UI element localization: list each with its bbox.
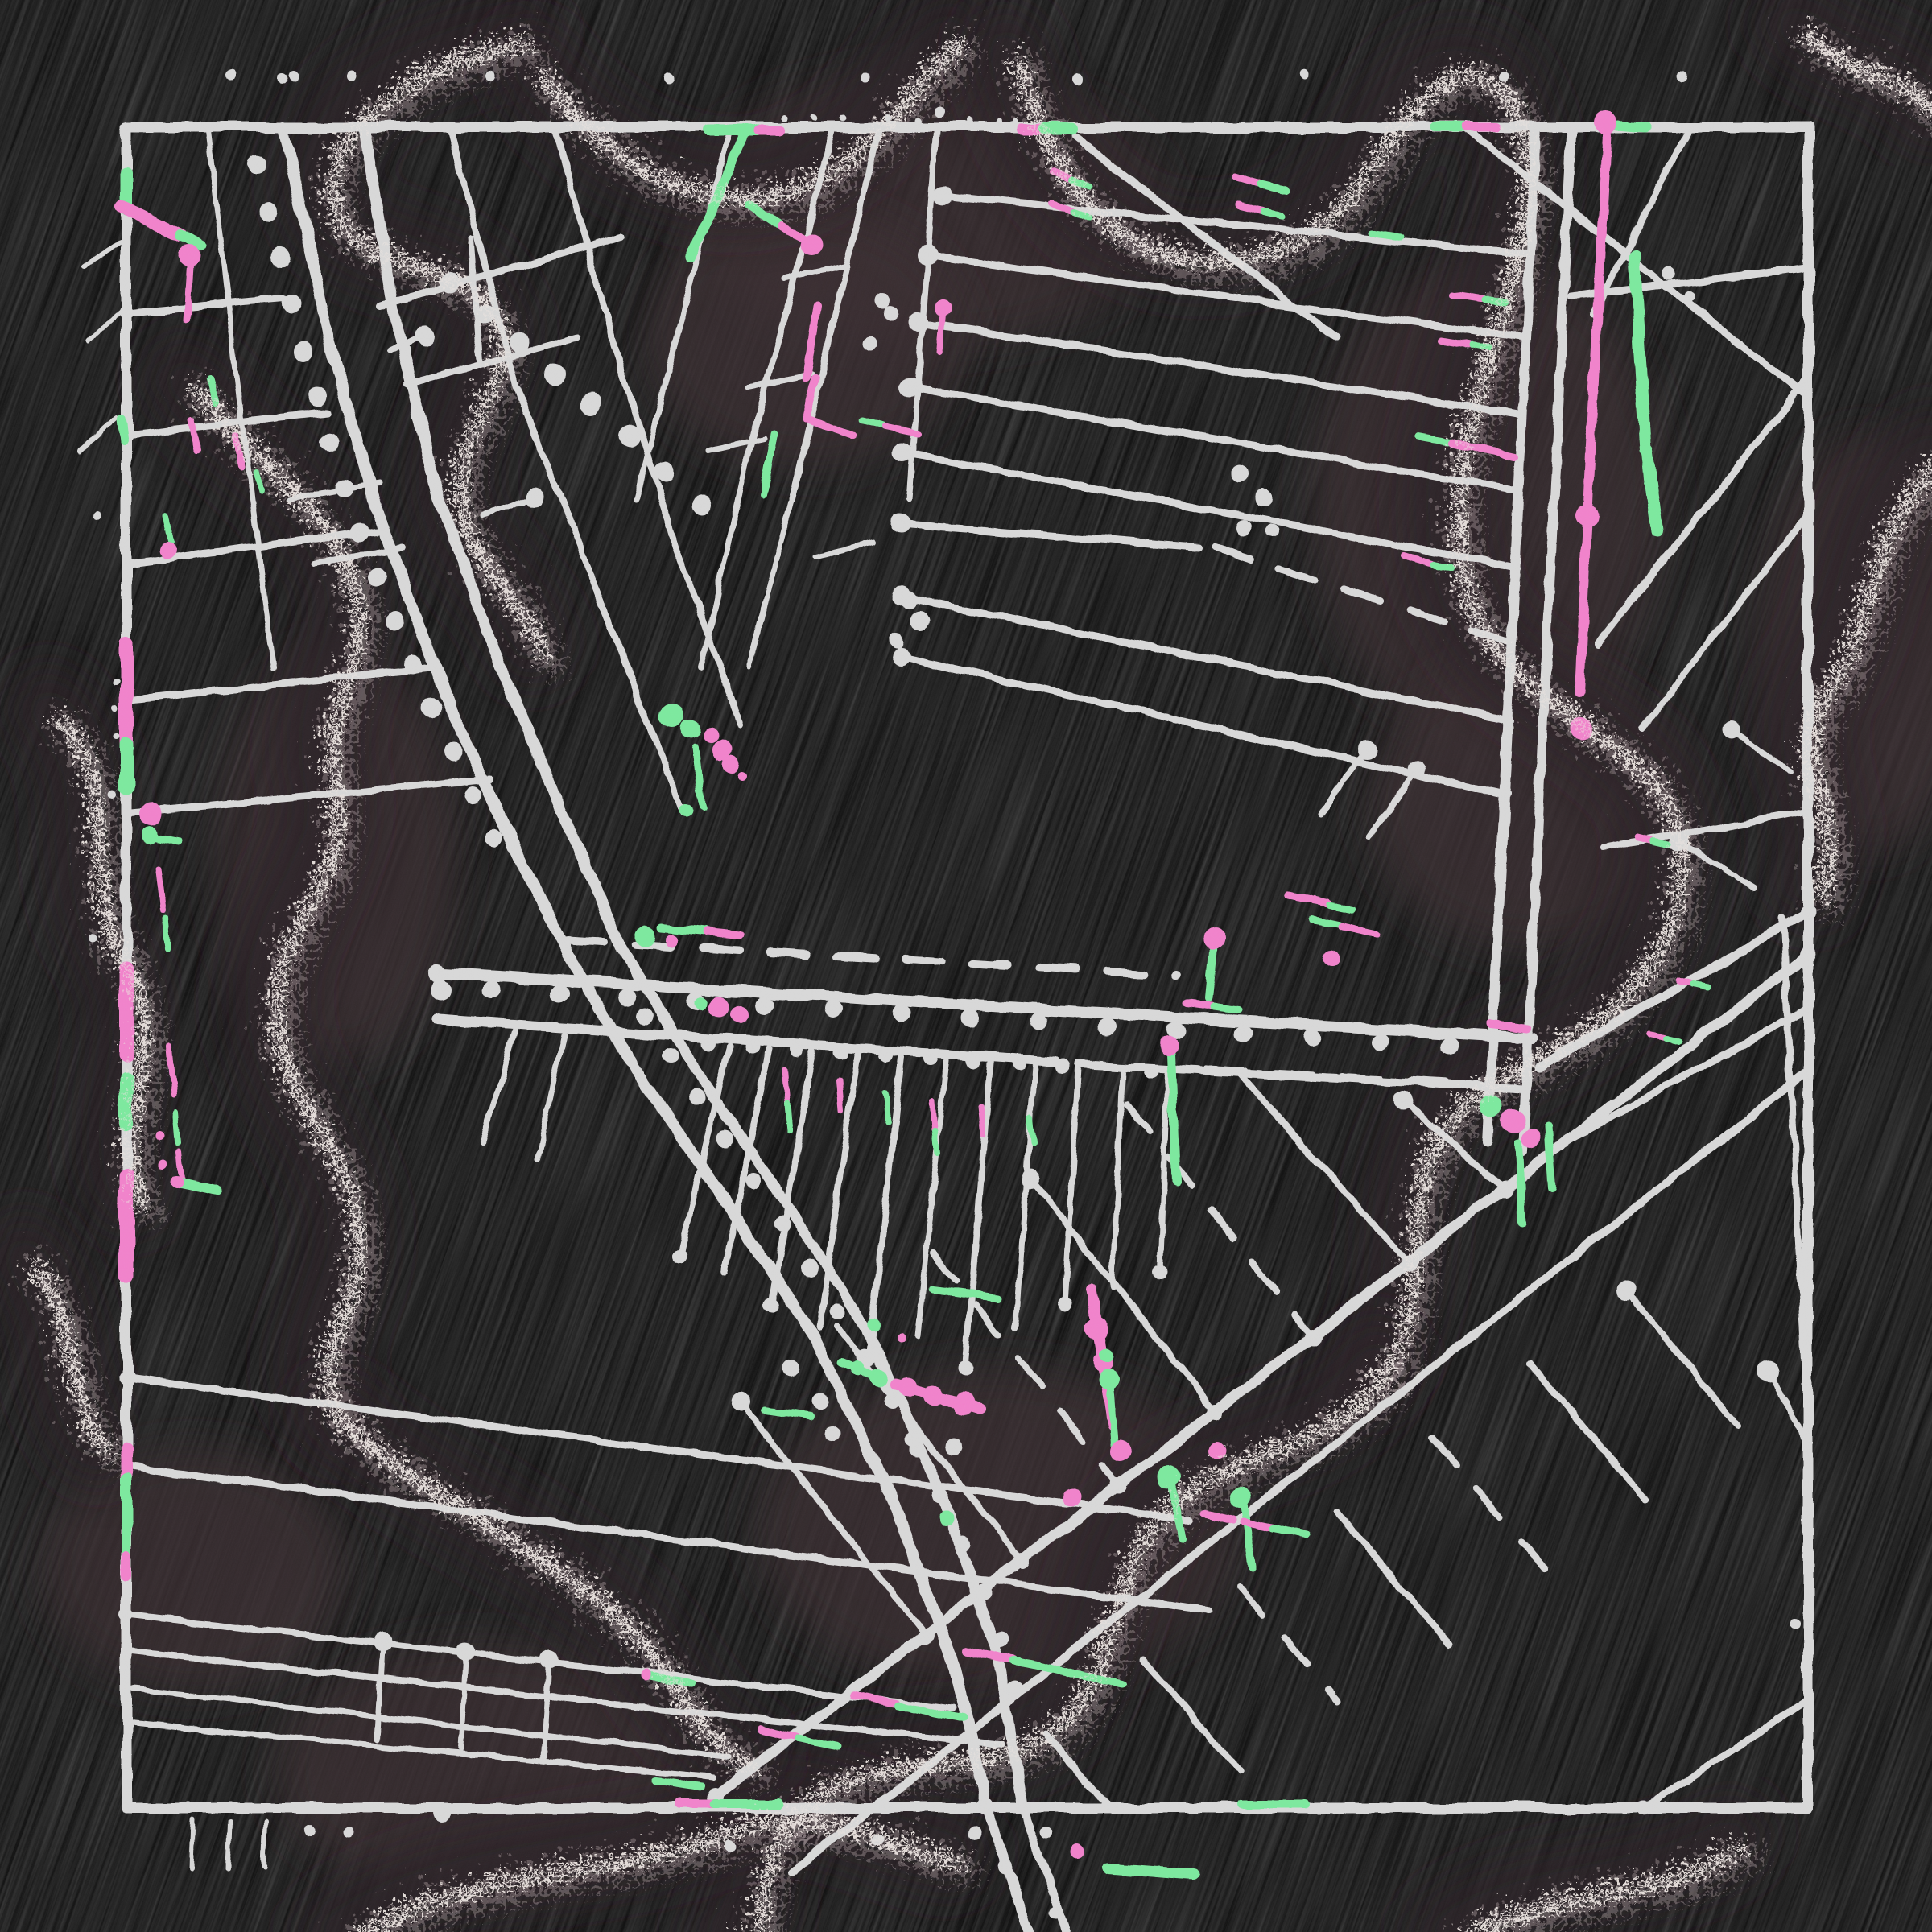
chalk-map-canvas: [0, 0, 1932, 1932]
chalk-map-artwork: [0, 0, 1932, 1932]
paper-grain-overlay: [0, 0, 1932, 1932]
